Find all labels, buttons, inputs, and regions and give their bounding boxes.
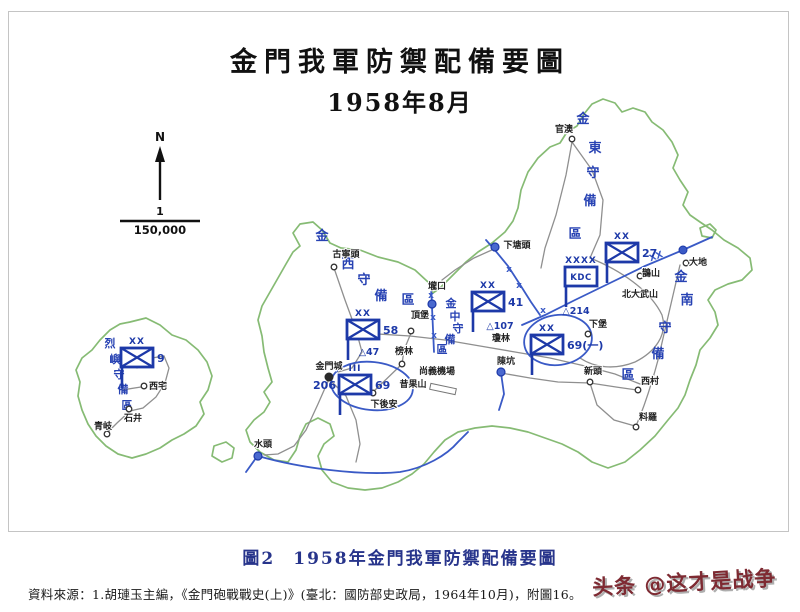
unit-number-label: 27 — [642, 247, 657, 260]
zone-label-char: 區 — [621, 368, 634, 383]
place-label: 鵲山 — [642, 267, 660, 279]
town-marker — [587, 379, 593, 385]
unit-echelon: XX — [129, 337, 145, 347]
town-marker-blue — [497, 368, 505, 376]
compass-and-scale: N 1 150,000 — [120, 130, 200, 237]
place-label: 下塘頭 — [503, 239, 531, 251]
zone-label-char: 區 — [437, 343, 448, 356]
place-label: 西宅 — [149, 380, 167, 392]
zone-label-char: 備 — [651, 346, 664, 362]
town-marker — [104, 431, 110, 437]
place-label: 壠口 — [428, 280, 446, 292]
town-marker — [585, 331, 591, 337]
zone-label-char: 東 — [588, 140, 601, 156]
unit-echelon: XX — [539, 324, 555, 334]
town-marker — [635, 387, 641, 393]
islet-southwest — [212, 442, 234, 462]
place-label: 頂堡 — [411, 309, 429, 321]
figure-caption-text: 1958年金門我軍防禦配備要圖 — [293, 549, 557, 569]
unit-number-label: 41 — [508, 296, 523, 309]
town-marker — [633, 424, 639, 430]
place-label: 昔果山 — [399, 378, 426, 390]
unit-echelon: XXXX — [565, 256, 597, 266]
unit-9-division: XX9 — [121, 337, 165, 388]
unit-echelon: XX — [480, 281, 496, 291]
town-marker — [569, 136, 575, 142]
road — [541, 142, 572, 268]
town-marker — [126, 406, 132, 412]
compass-north-label: N — [155, 130, 165, 144]
zone-label-char: 金 — [673, 269, 688, 285]
scale-denominator: 150,000 — [134, 223, 186, 237]
blue-road-tick — [246, 458, 256, 472]
elevation-label: △214 — [562, 306, 590, 317]
unit-number-label-left: 206 — [313, 379, 336, 392]
place-label: 古寧頭 — [332, 248, 360, 260]
place-label: 下堡 — [589, 318, 607, 330]
boundary-echelon-mark: x — [430, 313, 436, 323]
zone-label-char: 金 — [314, 228, 329, 244]
zone-label-char: 守 — [586, 165, 599, 181]
unit-number-label: 58 — [383, 324, 398, 337]
hq-designation: KDC — [570, 273, 591, 283]
boundary-dot — [679, 246, 687, 254]
zone-label-char: 金 — [575, 111, 590, 127]
zone-label-char: 區 — [568, 227, 581, 242]
town-marker — [683, 260, 689, 266]
blue-line-chenkeng — [499, 373, 504, 410]
unit-echelon: XX — [614, 232, 630, 242]
boundary-echelon-mark: x — [516, 281, 522, 291]
place-label: 石井 — [123, 412, 142, 424]
place-label: 大地 — [689, 256, 707, 268]
place-label: 官澳 — [555, 123, 574, 135]
town-marker — [141, 383, 147, 389]
zone-label-char: 守 — [658, 320, 671, 336]
zone-label-char: 南 — [680, 292, 693, 308]
unit-kdc: KDCXXXX — [565, 256, 597, 307]
town-marker-blue — [254, 452, 262, 460]
place-label: 北大武山 — [622, 288, 658, 300]
place-label: 金門城 — [314, 360, 342, 372]
zone-label-char: 嶼 — [110, 352, 121, 366]
place-label: 榜林 — [395, 345, 414, 357]
north-arrow-head — [155, 146, 165, 162]
zone-label-char: 烈 — [105, 336, 116, 350]
runway-shangyi-airport — [430, 383, 457, 394]
figure-caption: 圖21958年金門我軍防禦配備要圖 — [0, 544, 800, 569]
zone-label-char: 守 — [357, 272, 370, 288]
unit-number-label: 69(一) — [567, 339, 603, 352]
road — [501, 373, 637, 390]
place-label: 西村 — [641, 375, 659, 387]
town-marker — [399, 361, 405, 367]
place-label: 下後安 — [370, 398, 397, 410]
zone-label-char: 備 — [583, 193, 596, 209]
town-marker-blue — [428, 300, 436, 308]
boundary-echelon-mark: x — [431, 331, 437, 341]
unit-number-label: 69 — [375, 379, 390, 392]
town-marker — [408, 328, 414, 334]
place-labels: 官澳下塘頭古寧頭壠口頂堡榜林瓊林陳坑尚義機場昔果山下後安金門城水頭新頭西村料羅下… — [94, 123, 707, 460]
place-label: 料羅 — [639, 411, 657, 423]
place-label: 水頭 — [254, 438, 273, 450]
elevation-label: △107 — [486, 321, 513, 332]
place-label: 尚義機場 — [419, 365, 455, 377]
place-label: 新頭 — [584, 365, 603, 377]
figure-number: 圖2 — [242, 549, 275, 569]
defense-map: 金東守備區金西守備區金中守備區金南守備區烈嶼守備區 XXxxxxxx 官澳下塘頭… — [0, 0, 800, 540]
boundary-echelon-mark: x — [540, 306, 546, 316]
unit-echelon: XX — [355, 309, 371, 319]
unit-number-label: 9 — [157, 352, 165, 365]
boundary-echelon-mark: x — [506, 265, 512, 275]
place-label: 青岐 — [94, 420, 113, 432]
road — [590, 383, 635, 426]
elevation-label: △47 — [359, 347, 380, 358]
place-label: 瓊林 — [492, 332, 511, 344]
blue-road-south — [258, 432, 468, 473]
road — [442, 249, 494, 280]
zone-label-char: 中 — [450, 309, 461, 323]
place-label: 陳坑 — [497, 355, 515, 367]
zone-label-char: 金 — [445, 296, 458, 310]
town-marker — [331, 264, 337, 270]
town-marker-blue — [491, 243, 499, 251]
road-network — [108, 142, 680, 462]
scale-numerator: 1 — [156, 205, 164, 218]
zone-label-char: 備 — [374, 288, 387, 304]
unit-echelon: III — [348, 364, 361, 374]
zone-label-char: 區 — [401, 293, 414, 308]
